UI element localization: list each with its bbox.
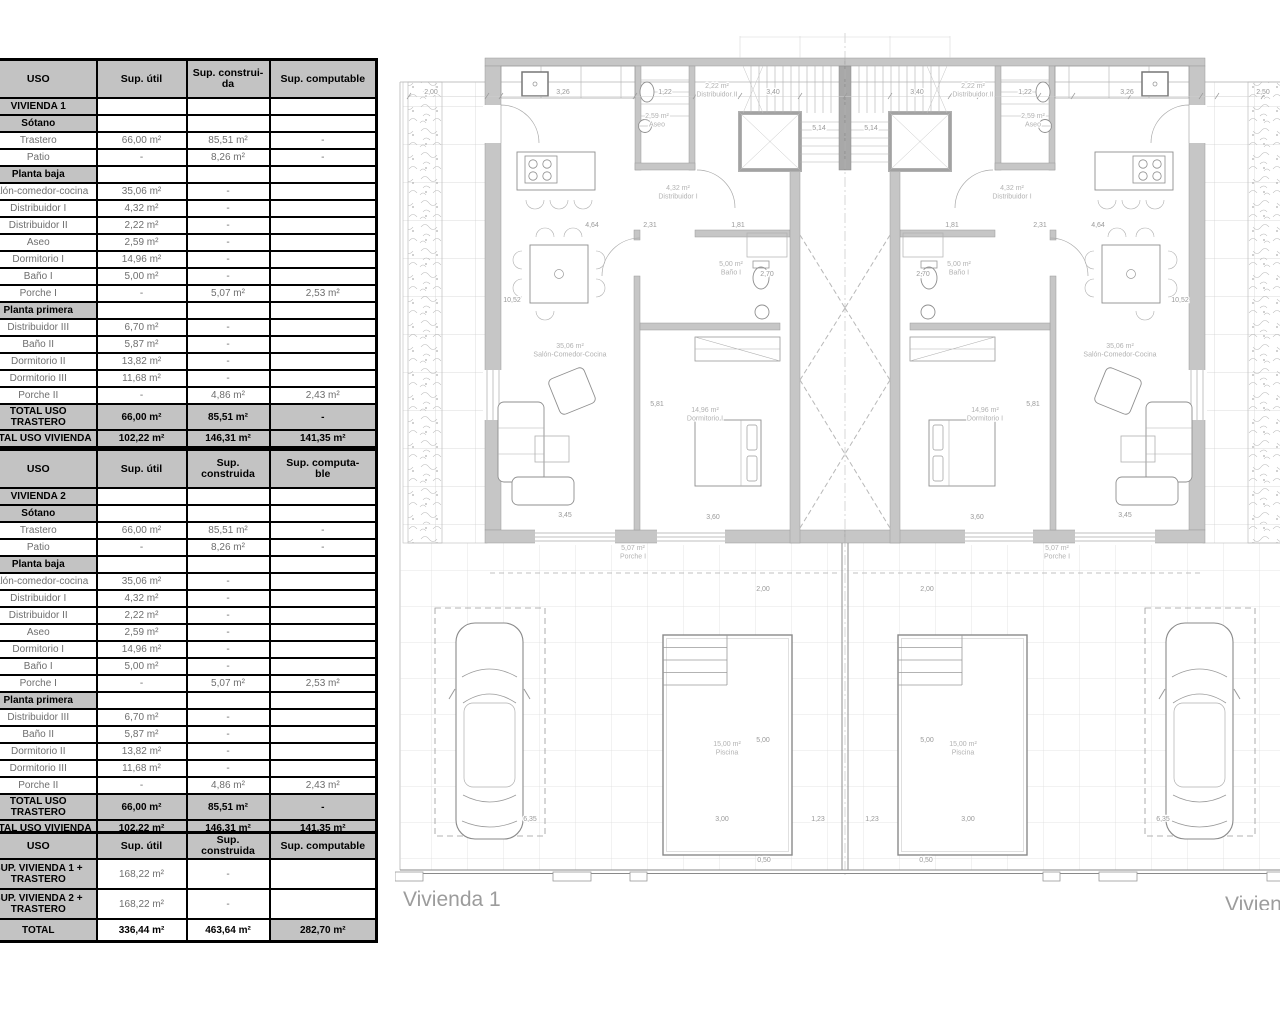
table-cell: Dormitorio I xyxy=(0,251,97,268)
table-cell xyxy=(270,859,377,889)
table-cell xyxy=(270,726,377,743)
table-cell: 11,68 m² xyxy=(97,370,187,387)
table-cell: - xyxy=(270,132,377,149)
column-header: Sup. útil xyxy=(97,833,187,860)
table-cell xyxy=(270,641,377,658)
table-row: SUP. VIVIENDA 1 + TRASTERO168,22 m²- xyxy=(0,859,377,889)
table-cell: - xyxy=(97,285,187,302)
table-cell: 5,87 m² xyxy=(97,336,187,353)
table-header-row: USOSup. útilSup. construi- daSup. comput… xyxy=(0,60,377,99)
table-cell xyxy=(187,488,270,505)
table-cell: - xyxy=(187,268,270,285)
table-cell: 4,86 m² xyxy=(187,387,270,404)
dimension-label: 3,26 xyxy=(1120,89,1134,96)
table-cell: 66,00 m² xyxy=(97,794,187,820)
dimension-label: 1,81 xyxy=(945,222,959,229)
dimension-label: 6,35 xyxy=(1156,816,1170,823)
column-header: Sup. construida xyxy=(187,833,270,860)
table-cell: - xyxy=(187,641,270,658)
table-cell: Patio xyxy=(0,149,97,166)
table-cell: - xyxy=(187,726,270,743)
table-cell xyxy=(270,217,377,234)
table-cell: - xyxy=(270,149,377,166)
table-cell xyxy=(97,302,187,319)
table-header-row: USOSup. útilSup. construidaSup. computab… xyxy=(0,833,377,860)
column-header: USO xyxy=(0,833,97,860)
floor-plan: 2,003,261,222,22 m²Distribuidor II3,403,… xyxy=(395,30,1280,910)
table-row: Trastero66,00 m²85,51 m²- xyxy=(0,522,377,539)
table-cell: 2,53 m² xyxy=(270,675,377,692)
table-cell: - xyxy=(187,183,270,200)
table-cell: SUP. VIVIENDA 1 + TRASTERO xyxy=(0,859,97,889)
table-cell: TOTAL USO TRASTERO xyxy=(0,404,97,430)
table-cell: 85,51 m² xyxy=(187,794,270,820)
dimension-label: 1,81 xyxy=(731,222,745,229)
room-label: 5,07 m²Porche I xyxy=(1044,545,1070,561)
table-cell: - xyxy=(187,859,270,889)
table-cell xyxy=(270,556,377,573)
dimension-label: 2,31 xyxy=(643,222,657,229)
table-row: VIVIENDA 1 xyxy=(0,98,377,115)
column-header: Sup. útil xyxy=(97,60,187,99)
table-cell xyxy=(97,505,187,522)
dimension-label: 2,70 xyxy=(916,271,930,278)
table-cell: 35,06 m² xyxy=(97,573,187,590)
table-cell xyxy=(187,166,270,183)
table-cell: 85,51 m² xyxy=(187,522,270,539)
table-cell: VIVIENDA 1 xyxy=(0,98,97,115)
dimension-label: 1,22 xyxy=(1018,89,1032,96)
dimension-label: 2,50 xyxy=(1256,89,1270,96)
table-cell: 8,26 m² xyxy=(187,539,270,556)
table-row: Salón-comedor-cocina35,06 m²- xyxy=(0,183,377,200)
dimension-label: 5,00 xyxy=(756,737,770,744)
table-cell: TOTAL USO TRASTERO xyxy=(0,794,97,820)
table-cell: Sótano xyxy=(0,505,97,522)
table-row: Planta primera xyxy=(0,302,377,319)
table-row: Dormitorio I14,96 m²- xyxy=(0,641,377,658)
table-cell: - xyxy=(187,624,270,641)
totals-table: USOSup. útilSup. construidaSup. computab… xyxy=(0,831,378,943)
table-header-row: USOSup. útilSup. construidaSup. computa-… xyxy=(0,450,377,489)
table-cell xyxy=(270,607,377,624)
column-header: Sup. computable xyxy=(270,60,377,99)
table-cell: Dormitorio III xyxy=(0,370,97,387)
room-label: 5,07 m²Porche I xyxy=(620,545,646,561)
table-cell xyxy=(270,98,377,115)
table-cell: 5,00 m² xyxy=(97,268,187,285)
room-label: 4,32 m²Distribuidor I xyxy=(658,185,697,201)
table-cell xyxy=(270,889,377,919)
table-cell: - xyxy=(270,794,377,820)
table-row: SUP. VIVIENDA 2 + TRASTERO168,22 m²- xyxy=(0,889,377,919)
table-cell: 5,07 m² xyxy=(187,285,270,302)
room-label: 15,00 m²Piscina xyxy=(949,741,977,757)
room-label: 5,00 m²Baño I xyxy=(719,261,743,277)
table-cell xyxy=(270,268,377,285)
table-cell: 5,87 m² xyxy=(97,726,187,743)
table-row: Baño II5,87 m²- xyxy=(0,726,377,743)
table-row: Baño I5,00 m²- xyxy=(0,658,377,675)
table-cell: - xyxy=(187,319,270,336)
table-cell: - xyxy=(97,539,187,556)
table-cell: Baño II xyxy=(0,726,97,743)
table-cell: 2,59 m² xyxy=(97,624,187,641)
table-cell: - xyxy=(187,889,270,919)
table-cell: SUP. VIVIENDA 2 + TRASTERO xyxy=(0,889,97,919)
table-cell: - xyxy=(270,404,377,430)
table-cell: 336,44 m² xyxy=(97,919,187,942)
table-cell: Baño I xyxy=(0,268,97,285)
table-cell: 5,00 m² xyxy=(97,658,187,675)
table-cell xyxy=(270,183,377,200)
table-cell: 463,64 m² xyxy=(187,919,270,942)
table-cell: - xyxy=(187,217,270,234)
table-cell xyxy=(270,590,377,607)
dwelling-label: Vivienda 1 xyxy=(403,888,501,910)
table-row: Sótano xyxy=(0,505,377,522)
dimension-label: 0,50 xyxy=(919,857,933,864)
dimension-label: 4,64 xyxy=(1091,222,1105,229)
table-cell: 13,82 m² xyxy=(97,743,187,760)
dimension-label: 4,64 xyxy=(585,222,599,229)
table-cell xyxy=(97,556,187,573)
table-cell: 66,00 m² xyxy=(97,132,187,149)
table-row: Distribuidor I4,32 m²- xyxy=(0,590,377,607)
table-cell: Porche I xyxy=(0,285,97,302)
table-cell: 35,06 m² xyxy=(97,183,187,200)
table-row: Sótano xyxy=(0,115,377,132)
table-cell xyxy=(270,234,377,251)
table-cell: Distribuidor II xyxy=(0,607,97,624)
table-cell: - xyxy=(187,709,270,726)
table-cell: Salón-comedor-cocina xyxy=(0,573,97,590)
table-cell xyxy=(270,319,377,336)
table-cell xyxy=(97,692,187,709)
dwelling-label: Vivienda 2 xyxy=(1225,893,1280,910)
table-cell xyxy=(270,760,377,777)
dimension-label: 3,45 xyxy=(1118,512,1132,519)
room-label: 2,59 m²Aseo xyxy=(645,113,669,129)
table-cell: 6,70 m² xyxy=(97,319,187,336)
table-cell: TOTAL xyxy=(0,919,97,942)
area-table-vivienda-2: USOSup. útilSup. construidaSup. computa-… xyxy=(0,448,378,839)
room-label: 5,00 m²Baño I xyxy=(947,261,971,277)
table-row: TOTAL USO TRASTERO66,00 m²85,51 m²- xyxy=(0,794,377,820)
table-cell: 5,07 m² xyxy=(187,675,270,692)
room-label: 35,06 m²Salón-Comedor-Cocina xyxy=(533,343,606,359)
table-row: Patio-8,26 m²- xyxy=(0,539,377,556)
table-cell: 2,59 m² xyxy=(97,234,187,251)
table-cell: - xyxy=(187,658,270,675)
table-row: TOTAL USO VIVIENDA102,22 m²146,31 m²141,… xyxy=(0,430,377,448)
table-cell xyxy=(97,488,187,505)
table-row: TOTAL USO TRASTERO66,00 m²85,51 m²- xyxy=(0,404,377,430)
dimension-label: 1,23 xyxy=(811,816,825,823)
column-header: Sup. computa- ble xyxy=(270,450,377,489)
table-row: Salón-comedor-cocina35,06 m²- xyxy=(0,573,377,590)
table-cell: Distribuidor I xyxy=(0,200,97,217)
table-cell: 85,51 m² xyxy=(187,132,270,149)
table-cell: Dormitorio III xyxy=(0,760,97,777)
room-label: 2,22 m²Distribuidor II xyxy=(952,83,993,99)
terrace-edge xyxy=(400,870,1280,874)
dimension-label: 3,26 xyxy=(556,89,570,96)
table-cell: VIVIENDA 2 xyxy=(0,488,97,505)
table-cell: 14,96 m² xyxy=(97,641,187,658)
table-row: Dormitorio III11,68 m²- xyxy=(0,760,377,777)
table-cell xyxy=(187,556,270,573)
dimension-label: 5,14 xyxy=(812,125,826,132)
table-cell: Dormitorio I xyxy=(0,641,97,658)
table-cell: 141,35 m² xyxy=(270,430,377,448)
table-cell: - xyxy=(187,743,270,760)
dimension-label: 0,50 xyxy=(757,857,771,864)
table-cell: Planta primera xyxy=(0,302,97,319)
table-row: Distribuidor I4,32 m²- xyxy=(0,200,377,217)
dimension-label: 3,40 xyxy=(910,89,924,96)
table-cell: 85,51 m² xyxy=(187,404,270,430)
dimension-label: 3,60 xyxy=(706,514,720,521)
table-cell: Planta baja xyxy=(0,166,97,183)
dimension-label: 3,00 xyxy=(961,816,975,823)
table-row: Patio-8,26 m²- xyxy=(0,149,377,166)
table-cell xyxy=(270,200,377,217)
table-cell: TOTAL USO VIVIENDA xyxy=(0,430,97,448)
table-cell: 2,43 m² xyxy=(270,777,377,794)
table-row: Aseo2,59 m²- xyxy=(0,234,377,251)
table-cell: Trastero xyxy=(0,132,97,149)
table-cell: - xyxy=(187,353,270,370)
room-label: 15,00 m²Piscina xyxy=(713,741,741,757)
dimension-label: 1,23 xyxy=(865,816,879,823)
table-cell: - xyxy=(187,336,270,353)
table-cell xyxy=(187,115,270,132)
table-row: VIVIENDA 2 xyxy=(0,488,377,505)
table-row: Porche I-5,07 m²2,53 m² xyxy=(0,675,377,692)
table-cell: - xyxy=(270,539,377,556)
table-cell: - xyxy=(97,777,187,794)
table-cell: Aseo xyxy=(0,624,97,641)
table-cell: 6,70 m² xyxy=(97,709,187,726)
column-header: Sup. útil xyxy=(97,450,187,489)
table-cell xyxy=(270,573,377,590)
table-cell xyxy=(270,743,377,760)
dimension-label: 3,45 xyxy=(558,512,572,519)
table-cell: 66,00 m² xyxy=(97,522,187,539)
table-cell: 66,00 m² xyxy=(97,404,187,430)
table-row: Trastero66,00 m²85,51 m²- xyxy=(0,132,377,149)
table-cell xyxy=(270,336,377,353)
area-table-totals: USOSup. útilSup. construidaSup. computab… xyxy=(0,831,378,943)
area-table-vivienda-1: USOSup. útilSup. construi- daSup. comput… xyxy=(0,58,378,449)
vivienda-2-table: USOSup. útilSup. construidaSup. computa-… xyxy=(0,448,378,839)
table-cell: 2,43 m² xyxy=(270,387,377,404)
table-cell: - xyxy=(97,149,187,166)
table-cell: 168,22 m² xyxy=(97,859,187,889)
table-cell xyxy=(97,115,187,132)
table-cell: 2,22 m² xyxy=(97,607,187,624)
table-cell xyxy=(270,353,377,370)
table-cell: - xyxy=(187,607,270,624)
table-row: Dormitorio III11,68 m²- xyxy=(0,370,377,387)
table-cell: Distribuidor II xyxy=(0,217,97,234)
table-row: Baño II5,87 m²- xyxy=(0,336,377,353)
table-row: Distribuidor II2,22 m²- xyxy=(0,217,377,234)
table-cell: 4,32 m² xyxy=(97,200,187,217)
table-cell: Baño II xyxy=(0,336,97,353)
table-cell: - xyxy=(187,590,270,607)
table-cell: 11,68 m² xyxy=(97,760,187,777)
table-row: Distribuidor III6,70 m²- xyxy=(0,709,377,726)
column-header: USO xyxy=(0,60,97,99)
table-cell xyxy=(97,166,187,183)
table-cell xyxy=(270,115,377,132)
table-cell: Baño I xyxy=(0,658,97,675)
table-cell: Distribuidor III xyxy=(0,709,97,726)
dimension-label: 2,31 xyxy=(1033,222,1047,229)
table-cell: - xyxy=(187,234,270,251)
table-row: Aseo2,59 m²- xyxy=(0,624,377,641)
vivienda-1-table: USOSup. útilSup. construi- daSup. comput… xyxy=(0,58,378,449)
room-label: 14,96 m²Dormitorio I xyxy=(967,407,1003,423)
table-cell: Sótano xyxy=(0,115,97,132)
table-cell: Planta primera xyxy=(0,692,97,709)
table-cell xyxy=(270,251,377,268)
table-cell: Porche I xyxy=(0,675,97,692)
table-cell: Aseo xyxy=(0,234,97,251)
table-cell xyxy=(187,98,270,115)
dimension-label: 5,81 xyxy=(650,401,664,408)
table-cell: Porche II xyxy=(0,387,97,404)
table-cell xyxy=(270,692,377,709)
column-header: Sup. construida xyxy=(187,450,270,489)
dimension-label: 5,14 xyxy=(864,125,878,132)
table-cell xyxy=(97,98,187,115)
table-cell: Distribuidor III xyxy=(0,319,97,336)
table-cell xyxy=(270,488,377,505)
table-cell xyxy=(187,505,270,522)
dimension-label: 1,22 xyxy=(658,89,672,96)
room-label: 4,32 m²Distribuidor I xyxy=(992,185,1031,201)
room-label: 35,06 m²Salón-Comedor-Cocina xyxy=(1083,343,1156,359)
dimension-label: 3,60 xyxy=(970,514,984,521)
table-row: TOTAL336,44 m²463,64 m²282,70 m² xyxy=(0,919,377,942)
table-cell: - xyxy=(187,370,270,387)
table-row: Porche II-4,86 m²2,43 m² xyxy=(0,777,377,794)
table-cell: 2,22 m² xyxy=(97,217,187,234)
table-cell: 282,70 m² xyxy=(270,919,377,942)
dimension-label: 10,52 xyxy=(503,297,521,304)
table-cell: 4,86 m² xyxy=(187,777,270,794)
table-cell xyxy=(270,370,377,387)
table-cell: - xyxy=(97,675,187,692)
table-cell: 102,22 m² xyxy=(97,430,187,448)
room-label: 14,96 m²Dormitorio I xyxy=(687,407,723,423)
dimension-label: 3,40 xyxy=(766,89,780,96)
table-cell: - xyxy=(187,251,270,268)
table-cell xyxy=(187,302,270,319)
table-row: Planta primera xyxy=(0,692,377,709)
table-cell: - xyxy=(270,522,377,539)
table-row: Planta baja xyxy=(0,556,377,573)
table-cell: 14,96 m² xyxy=(97,251,187,268)
table-cell: - xyxy=(97,387,187,404)
table-cell: 146,31 m² xyxy=(187,430,270,448)
table-row: Planta baja xyxy=(0,166,377,183)
table-cell: Planta baja xyxy=(0,556,97,573)
table-row: Dormitorio II13,82 m²- xyxy=(0,353,377,370)
table-row: Baño I5,00 m²- xyxy=(0,268,377,285)
column-header: Sup. construi- da xyxy=(187,60,270,99)
table-cell: 2,53 m² xyxy=(270,285,377,302)
column-header: Sup. computable xyxy=(270,833,377,860)
table-cell xyxy=(270,166,377,183)
dimension-label: 6,35 xyxy=(523,816,537,823)
table-cell: Trastero xyxy=(0,522,97,539)
table-cell: 168,22 m² xyxy=(97,889,187,919)
dimension-label: 2,70 xyxy=(760,271,774,278)
table-row: Porche I-5,07 m²2,53 m² xyxy=(0,285,377,302)
table-cell xyxy=(270,658,377,675)
table-row: Distribuidor II2,22 m²- xyxy=(0,607,377,624)
table-cell: 13,82 m² xyxy=(97,353,187,370)
table-cell xyxy=(270,505,377,522)
dimension-label: 5,81 xyxy=(1026,401,1040,408)
dimension-label: 10,52 xyxy=(1171,297,1189,304)
table-cell xyxy=(270,624,377,641)
dimension-label: 5,00 xyxy=(920,737,934,744)
table-cell: Patio xyxy=(0,539,97,556)
table-cell: Salón-comedor-cocina xyxy=(0,183,97,200)
room-label: 2,22 m²Distribuidor II xyxy=(696,83,737,99)
table-cell: - xyxy=(187,760,270,777)
table-row: Dormitorio II13,82 m²- xyxy=(0,743,377,760)
dimension-label: 2,00 xyxy=(920,586,934,593)
table-cell: Distribuidor I xyxy=(0,590,97,607)
table-cell: Porche II xyxy=(0,777,97,794)
table-row: Porche II-4,86 m²2,43 m² xyxy=(0,387,377,404)
dimension-label: 3,00 xyxy=(715,816,729,823)
table-cell: 8,26 m² xyxy=(187,149,270,166)
column-header: USO xyxy=(0,450,97,489)
table-cell: Dormitorio II xyxy=(0,353,97,370)
dimension-label: 2,00 xyxy=(424,89,438,96)
table-cell xyxy=(270,302,377,319)
table-cell: Dormitorio II xyxy=(0,743,97,760)
table-cell: - xyxy=(187,200,270,217)
table-cell xyxy=(270,709,377,726)
dimension-label: 2,00 xyxy=(756,586,770,593)
table-cell xyxy=(187,692,270,709)
table-cell: 4,32 m² xyxy=(97,590,187,607)
table-cell: - xyxy=(187,573,270,590)
table-row: Distribuidor III6,70 m²- xyxy=(0,319,377,336)
table-row: Dormitorio I14,96 m²- xyxy=(0,251,377,268)
